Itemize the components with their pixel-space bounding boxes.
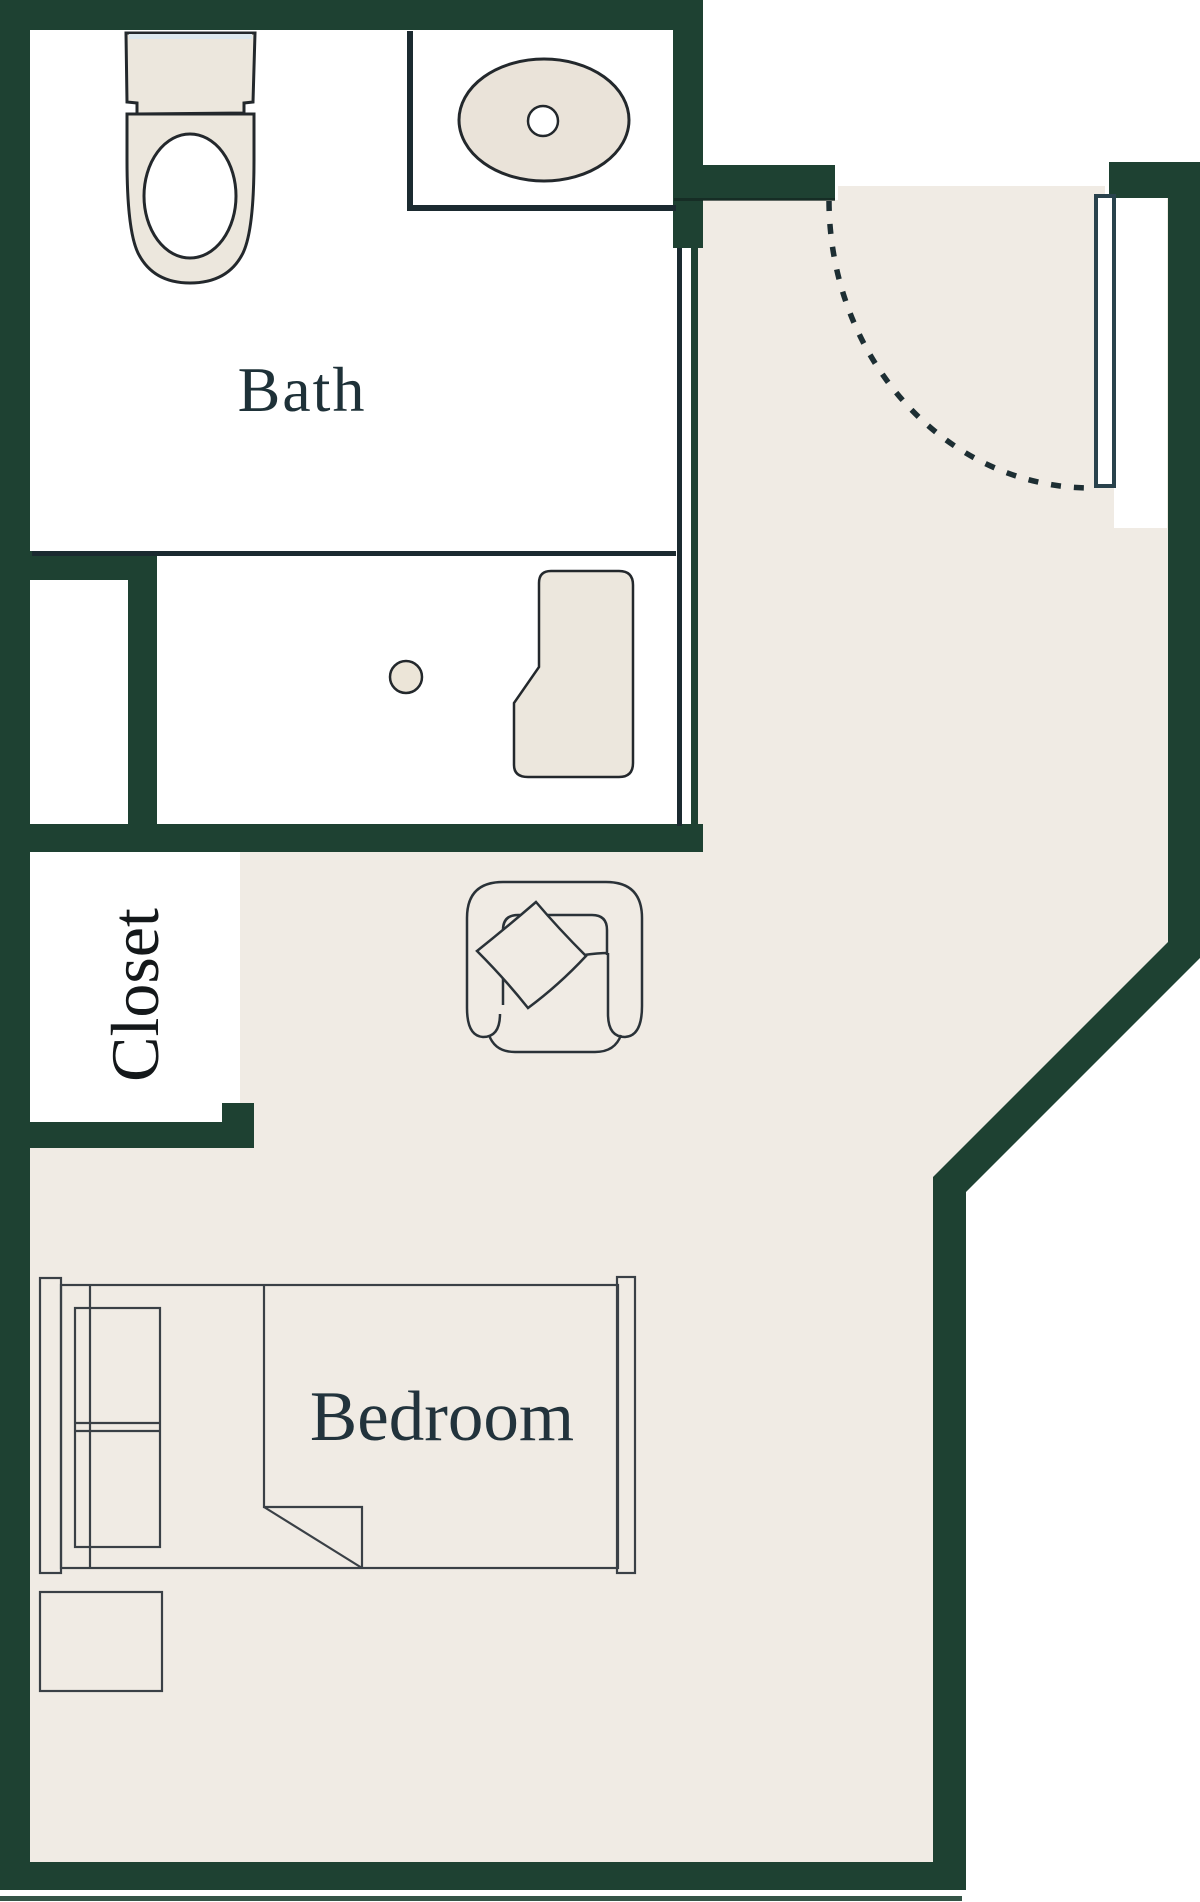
svg-text:Closet: Closet bbox=[97, 908, 173, 1082]
svg-text:Bath: Bath bbox=[238, 354, 367, 425]
svg-text:Bedroom: Bedroom bbox=[310, 1378, 574, 1456]
